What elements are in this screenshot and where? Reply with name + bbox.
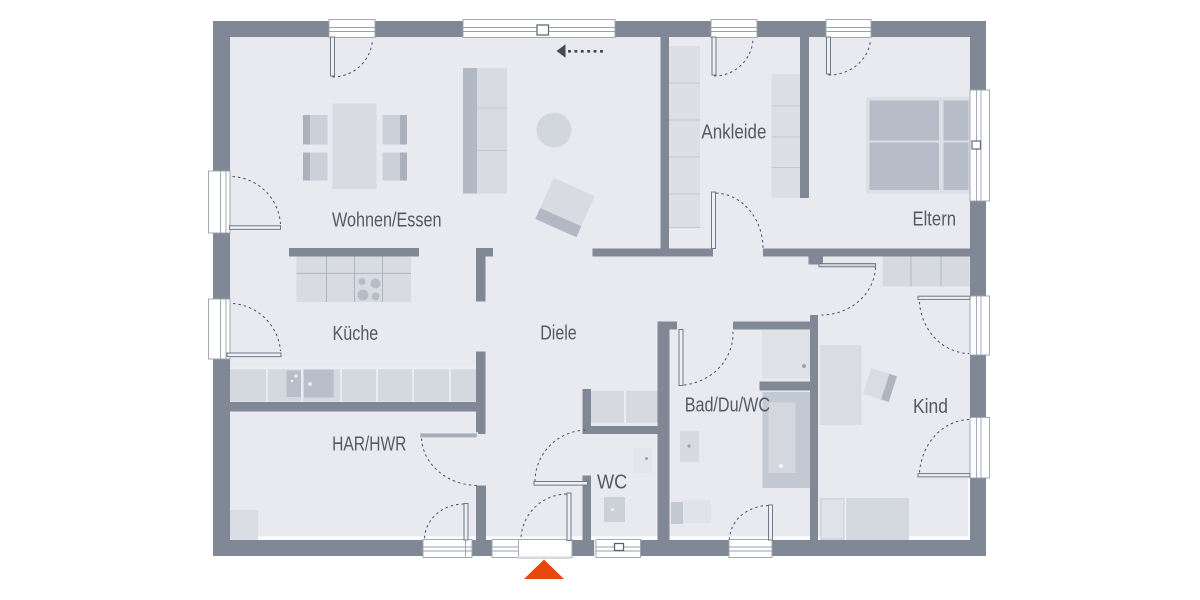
svg-text:Kind: Kind — [913, 396, 948, 418]
svg-text:Ankleide: Ankleide — [701, 121, 766, 143]
svg-text:HAR/HWR: HAR/HWR — [332, 434, 406, 456]
svg-text:Eltern: Eltern — [913, 209, 957, 231]
svg-text:Bad/Du/WC: Bad/Du/WC — [685, 395, 770, 417]
svg-text:Küche: Küche — [333, 323, 379, 345]
svg-text:Wohnen/Essen: Wohnen/Essen — [332, 209, 442, 231]
svg-text:Diele: Diele — [540, 323, 577, 345]
svg-text:WC: WC — [597, 472, 627, 494]
